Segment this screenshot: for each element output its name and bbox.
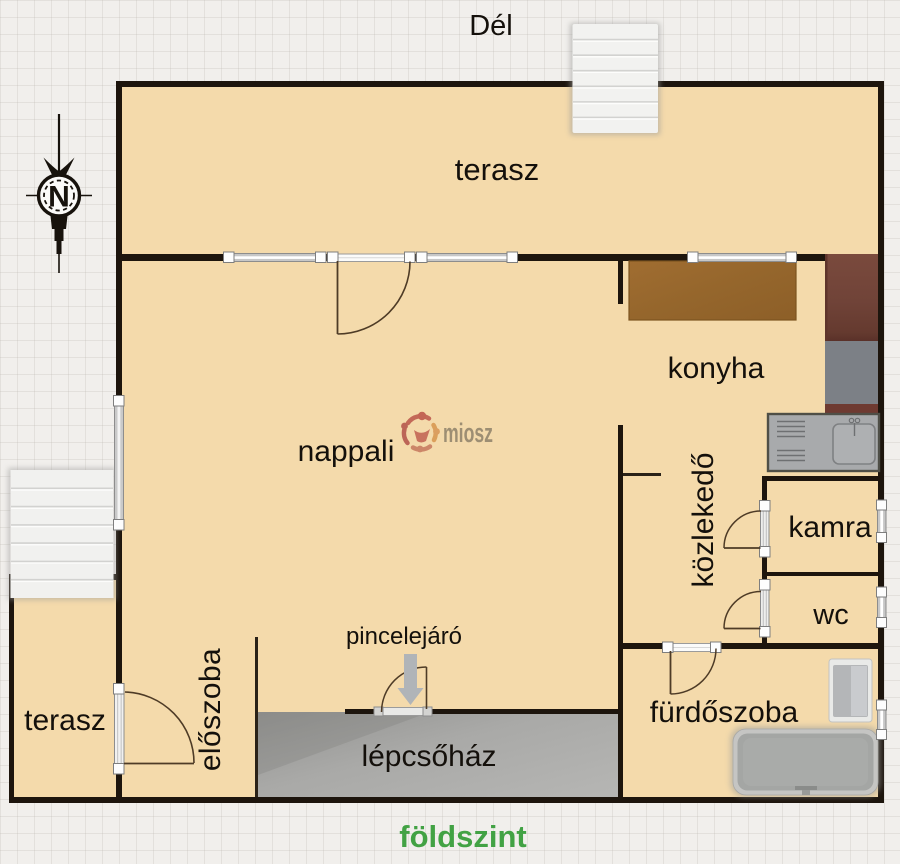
svg-text:terasz: terasz (24, 704, 106, 737)
svg-text:nappali: nappali (298, 435, 395, 468)
svg-text:konyha: konyha (668, 352, 765, 385)
svg-text:lépcsőház: lépcsőház (361, 740, 496, 773)
svg-text:wc: wc (812, 599, 848, 631)
svg-text:N: N (48, 181, 70, 214)
svg-text:Dél: Dél (469, 10, 513, 42)
svg-text:terasz: terasz (455, 152, 539, 187)
svg-text:földszint: földszint (399, 819, 526, 854)
svg-text:előszoba: előszoba (194, 648, 227, 771)
svg-text:közlekedő: közlekedő (687, 452, 720, 587)
svg-text:kamra: kamra (788, 511, 872, 544)
svg-text:miosz: miosz (443, 418, 493, 448)
svg-text:fürdőszoba: fürdőszoba (650, 696, 799, 729)
svg-text:pincelejáró: pincelejáró (346, 623, 462, 650)
